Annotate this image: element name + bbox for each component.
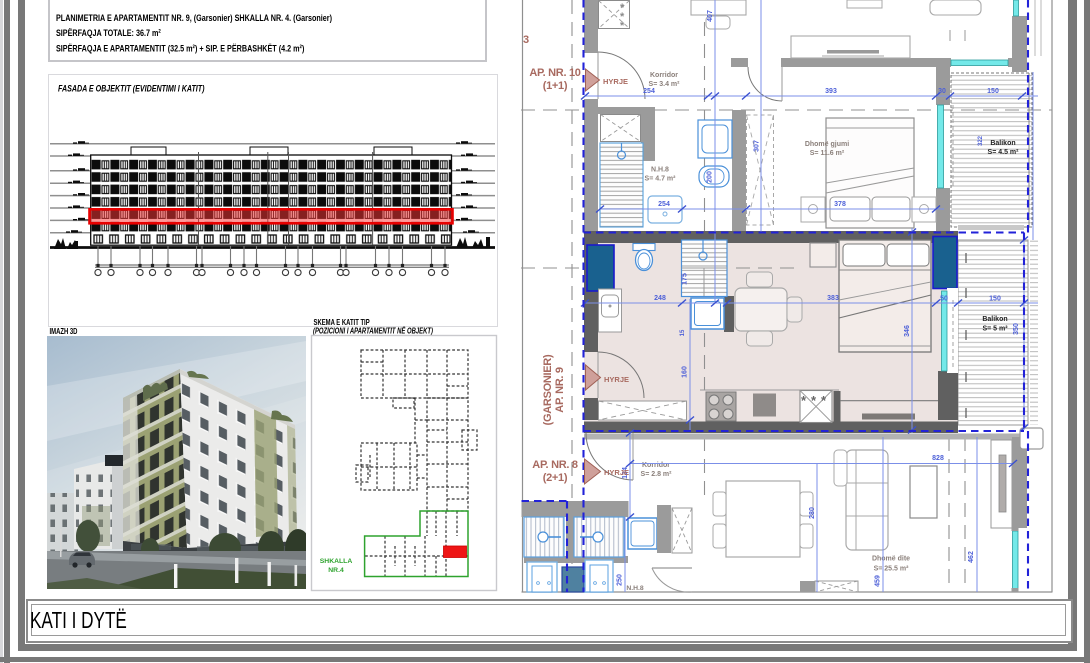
svg-text:NR.4: NR.4 [328,567,344,574]
svg-text:175: 175 [682,273,689,285]
svg-text:378: 378 [834,201,846,208]
svg-text:*: * [620,20,625,32]
svg-text:160: 160 [682,366,689,378]
svg-text:S= 4.7 m²: S= 4.7 m² [645,176,677,183]
svg-text:HYRJE: HYRJE [604,468,629,477]
svg-text:Balikon: Balikon [982,316,1007,323]
svg-text:SIPËRFAQJA TOTALE: 36.7 m²: SIPËRFAQJA TOTALE: 36.7 m² [56,27,161,38]
svg-text:S= 3.4 m²: S= 3.4 m² [649,81,681,88]
svg-text:(2+1): (2+1) [543,472,568,484]
svg-text:(GARSONIER): (GARSONIER) [542,354,554,425]
svg-text:AP. NR. 8: AP. NR. 8 [532,459,578,471]
svg-text:Dhomë dite: Dhomë dite [872,556,910,563]
svg-text:S= 25.5 m²: S= 25.5 m² [874,566,909,573]
svg-text:346: 346 [904,325,911,337]
svg-text:FASADA E OBJEKTIT (EVIDENTIMI: FASADA E OBJEKTIT (EVIDENTIMI I KATIT) [58,82,205,93]
svg-text:N.H.8: N.H.8 [651,167,669,174]
svg-text:322: 322 [978,135,984,146]
svg-text:462: 462 [968,551,975,563]
svg-text:SIPËRFAQJA E APARTAMENTIT (32.: SIPËRFAQJA E APARTAMENTIT (32.5 m²) + SI… [56,42,305,53]
svg-text:S= 11.6 m²: S= 11.6 m² [810,150,845,157]
svg-text:S= 4.5 m²: S= 4.5 m² [988,149,1020,156]
svg-text:SKEMA E KATIT TIP: SKEMA E KATIT TIP [314,319,370,327]
svg-text:30: 30 [938,88,946,95]
svg-text:150: 150 [989,296,1001,303]
svg-text:50: 50 [940,296,948,303]
svg-text:200: 200 [707,171,714,183]
svg-text:307: 307 [754,140,761,152]
svg-text:393: 393 [825,88,837,95]
svg-text:350: 350 [1013,323,1020,335]
svg-text:N.H.8: N.H.8 [626,585,644,592]
svg-text:407: 407 [707,10,714,22]
svg-text:HYRJE: HYRJE [604,375,629,384]
svg-text:459: 459 [875,575,882,587]
svg-text:SHKALLA: SHKALLA [320,558,353,565]
svg-text:150: 150 [987,88,999,95]
svg-text:S= 5 m²: S= 5 m² [982,326,1008,333]
svg-text:250: 250 [617,574,624,586]
svg-text:KATI I DYTË: KATI I DYTË [30,607,127,633]
svg-text:Dhomë gjumi: Dhomë gjumi [805,141,849,148]
svg-text:3: 3 [523,34,529,46]
svg-text:248: 248 [654,295,666,302]
svg-text:Korridor: Korridor [650,72,678,79]
svg-text:Balikon: Balikon [990,140,1015,147]
svg-text:(1+1): (1+1) [543,80,568,92]
svg-text:S= 2.8 m²: S= 2.8 m² [641,471,673,478]
svg-text:280: 280 [809,507,816,519]
svg-text:383: 383 [827,295,839,302]
svg-text:254: 254 [643,88,655,95]
svg-text:PLANIMETRIA E APARTAMENTIT NR.: PLANIMETRIA E APARTAMENTIT NR. 9, (Garso… [56,12,332,23]
svg-text:254: 254 [658,201,670,208]
svg-text:AP. NR. 10: AP. NR. 10 [529,67,580,79]
svg-text:AP. NR. 9: AP. NR. 9 [554,367,566,413]
svg-text:828: 828 [932,455,944,462]
svg-text:HYRJE: HYRJE [603,77,628,86]
svg-text:15: 15 [680,329,686,336]
